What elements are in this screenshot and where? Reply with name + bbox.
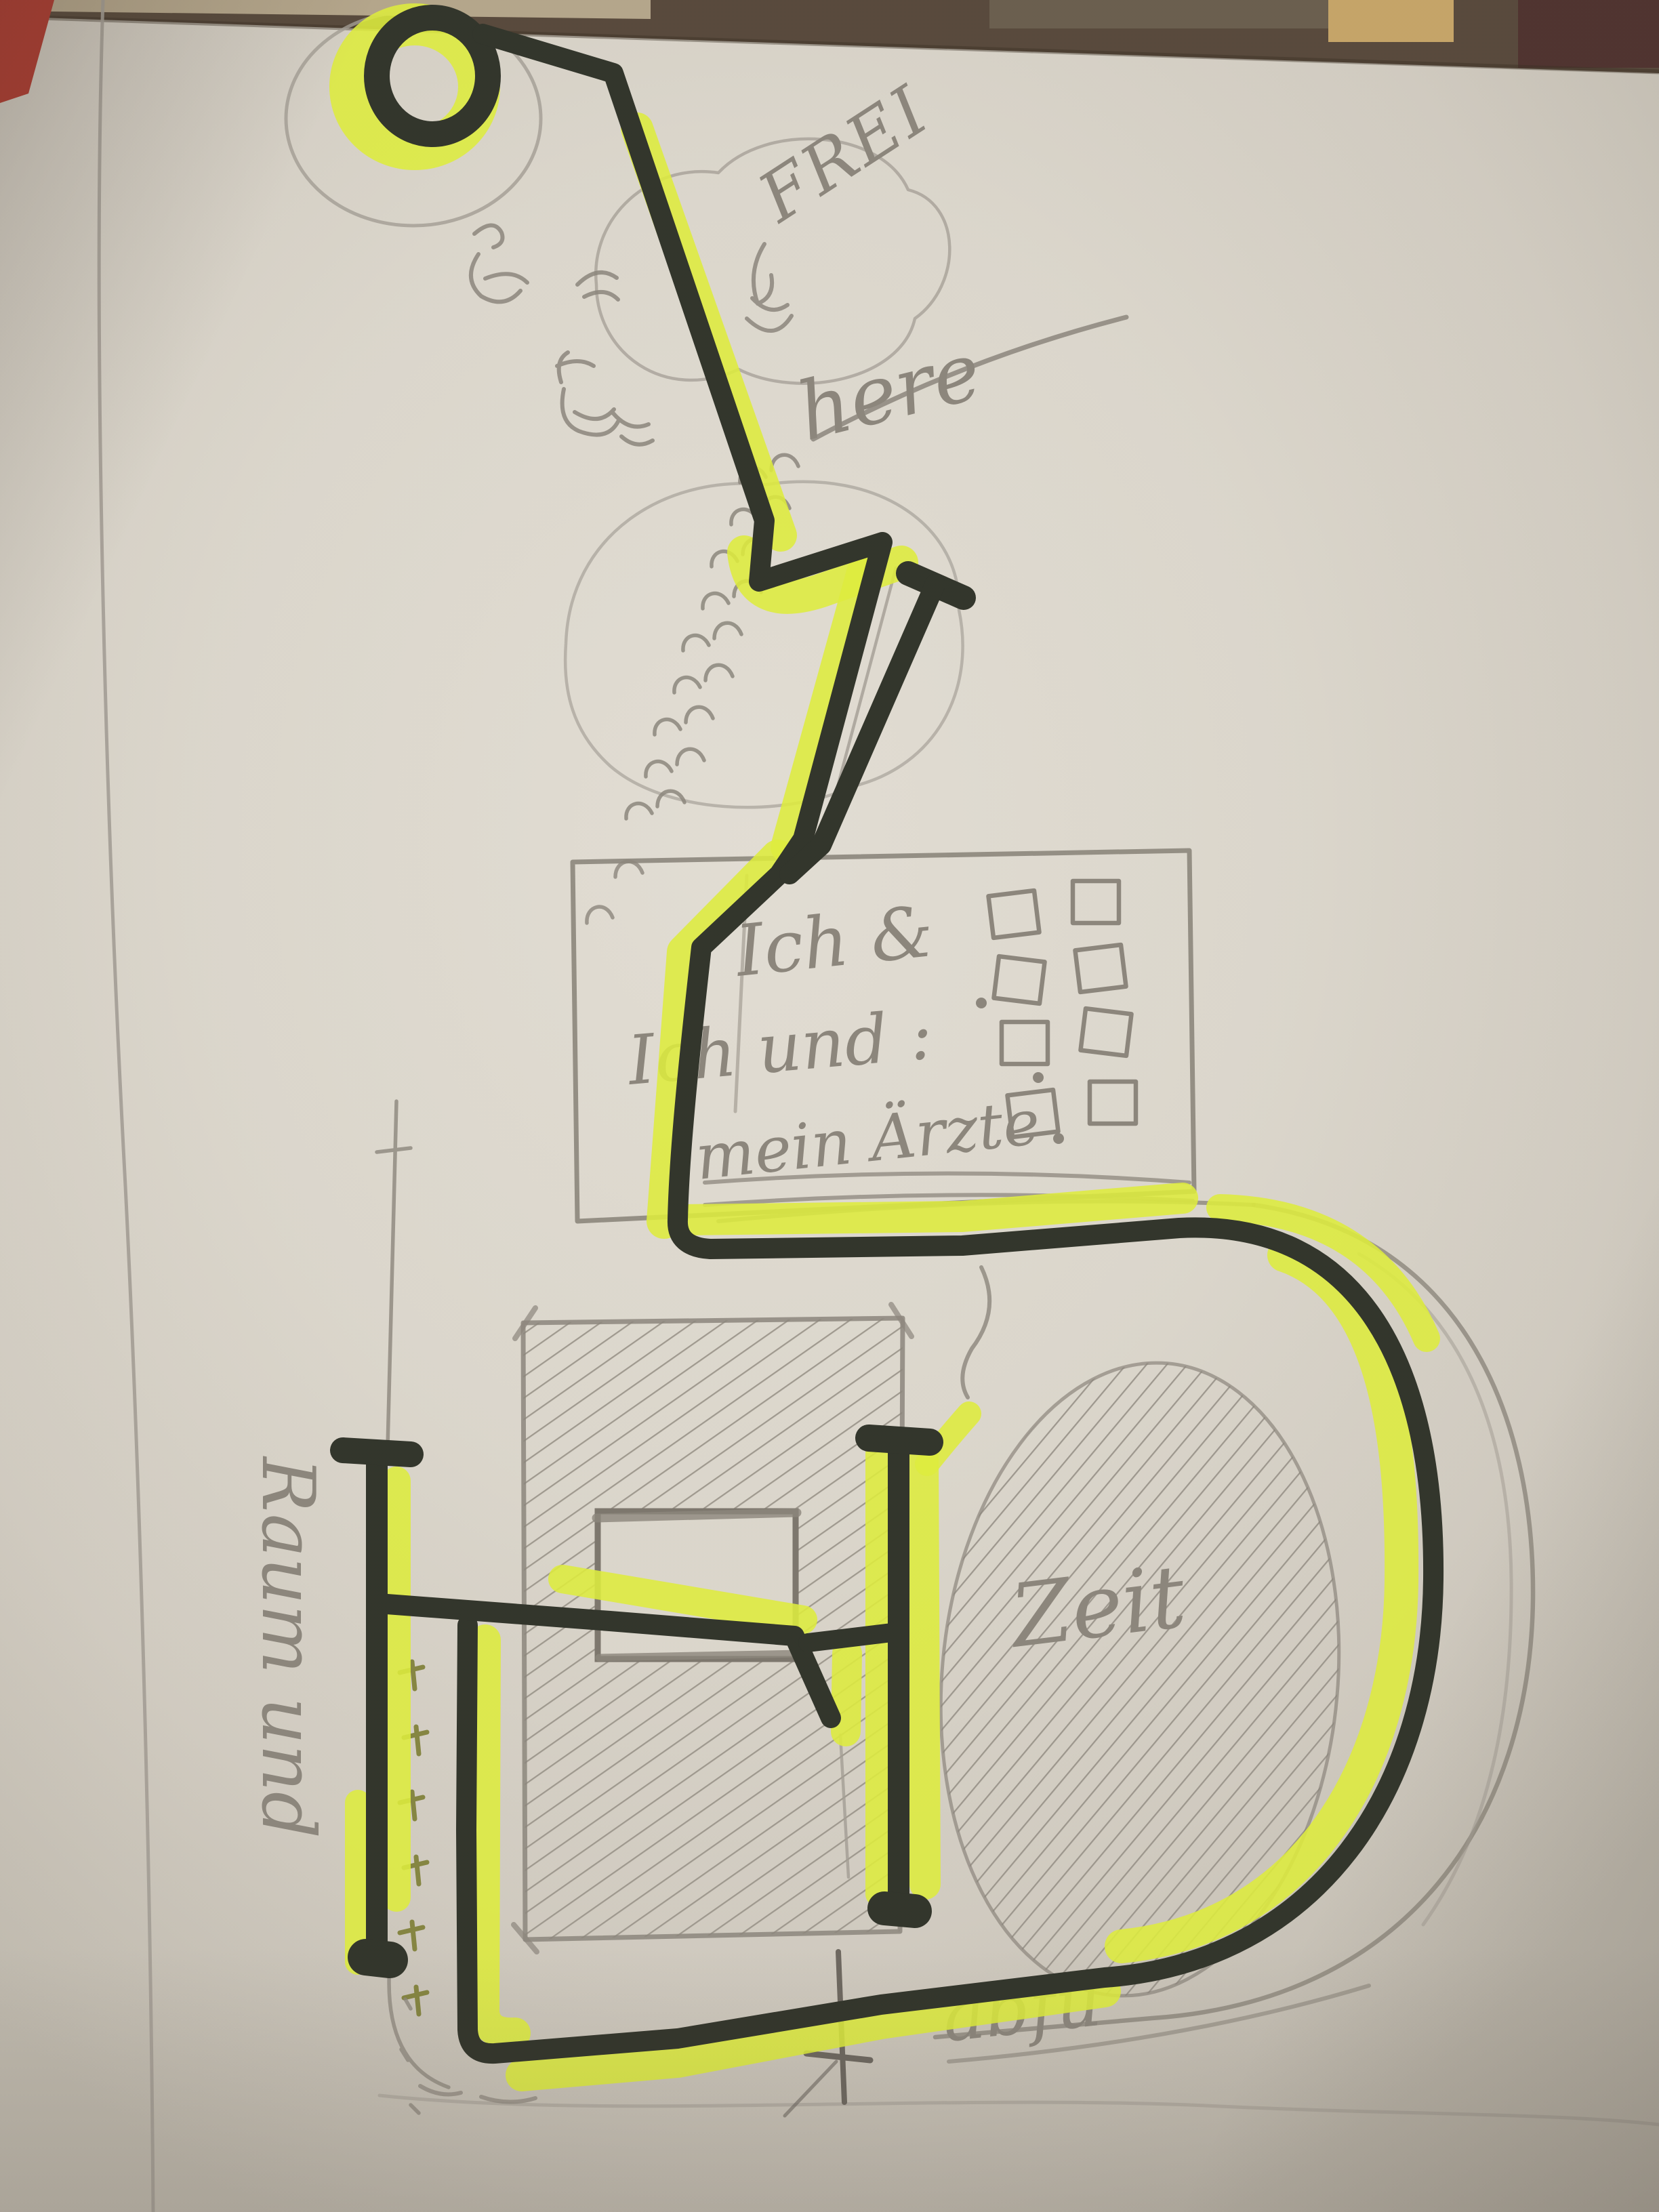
sketch-photo: FREI here Ich & Ich und : mein Ärzte	[0, 0, 1659, 2212]
box-line1: Ich &	[731, 890, 937, 993]
doodle-mark	[646, 749, 704, 777]
doodle-mark	[655, 707, 713, 735]
table-background	[0, 0, 1659, 103]
oval-label: Zeit	[1003, 1546, 1191, 1668]
margin-pencil-line	[99, 0, 153, 2212]
dot-doodle	[1053, 1133, 1064, 1144]
checkbox-doodle	[988, 890, 1039, 938]
doodle-mark	[674, 665, 733, 693]
box-line3: mein Ärzte	[692, 1086, 1043, 1194]
bottom-pencil-line	[380, 2095, 1659, 2125]
checkbox-doodle	[1073, 881, 1119, 923]
doodle-mark	[626, 791, 684, 819]
dot-doodle	[1033, 1072, 1044, 1083]
dot-doodle	[976, 998, 987, 1008]
checkbox-doodle	[1090, 1082, 1136, 1124]
pencil-guide-line	[377, 1101, 411, 1447]
checkbox-doodle	[994, 956, 1044, 1004]
doodle-mark	[683, 623, 741, 651]
marker-branch	[808, 1632, 897, 1643]
table-tan-patch	[1328, 0, 1454, 42]
doodle-mark	[400, 1922, 423, 1949]
margin-note: Raum und	[245, 1456, 330, 1839]
frei-label: FREI	[744, 70, 944, 238]
red-corner-object	[0, 0, 54, 103]
checkbox-doodle	[1002, 1022, 1048, 1064]
photographed-sketch-page: { "photo": { "scene": "Hand-drawn sketch…	[0, 0, 1659, 2212]
pencil-tail-bottom-left	[389, 1965, 449, 2113]
checkbox-doodle	[1075, 945, 1126, 992]
checkbox-doodle	[1080, 1008, 1131, 1056]
table-maroon-patch	[1518, 0, 1659, 68]
